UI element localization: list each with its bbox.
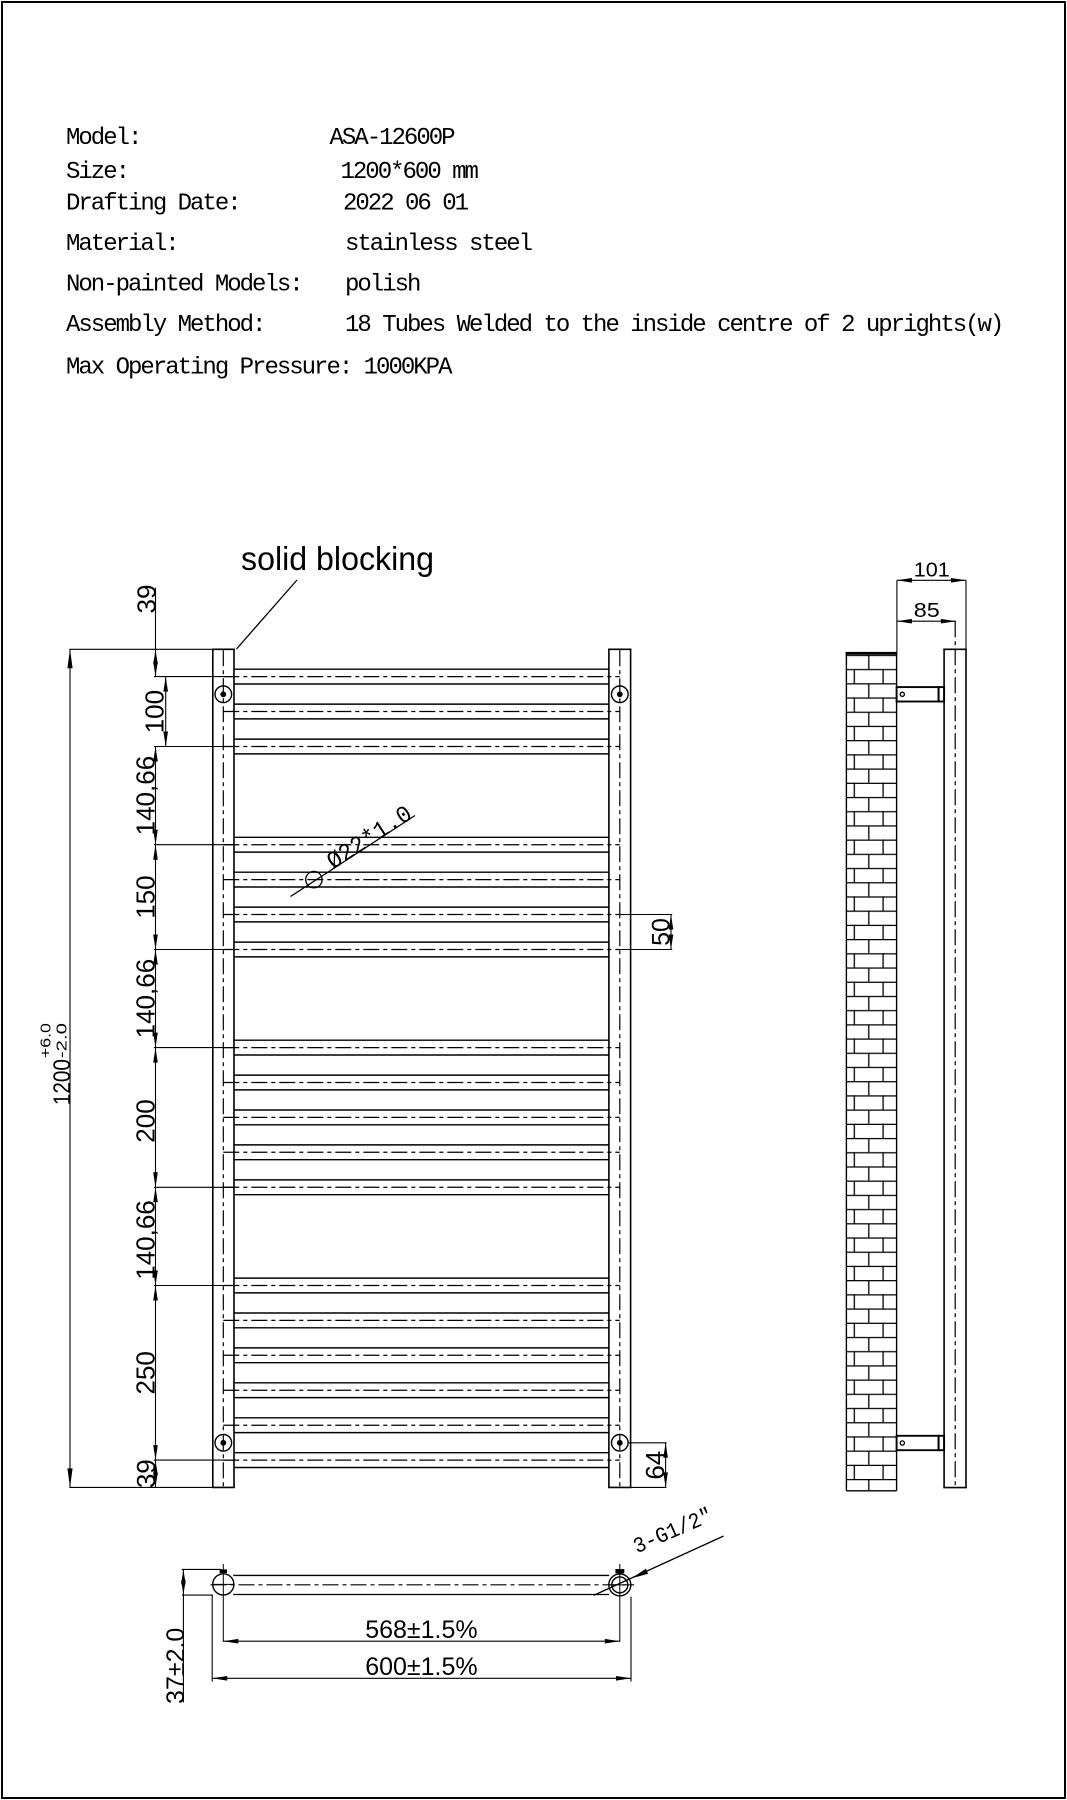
svg-text:2022 06 01: 2022 06 01: [343, 191, 469, 218]
svg-text:polish: polish: [345, 271, 420, 298]
svg-text:39: 39: [131, 1459, 161, 1488]
svg-text:3-G1/2": 3-G1/2": [630, 1503, 717, 1559]
svg-text:-2.0: -2.0: [54, 1023, 71, 1058]
svg-text:85: 85: [914, 600, 940, 622]
svg-text:18 Tubes Welded to the inside: 18 Tubes Welded to the inside centre of …: [345, 312, 1002, 339]
svg-text:ASA-12600P: ASA-12600P: [330, 125, 456, 152]
svg-text:600±1.5%: 600±1.5%: [365, 1653, 477, 1681]
svg-text:Assembly Method:: Assembly Method:: [66, 312, 264, 339]
svg-text:140,66: 140,66: [131, 756, 161, 836]
svg-text:1200: 1200: [49, 1059, 76, 1105]
svg-text:Non-painted Models:: Non-painted Models:: [66, 271, 302, 298]
svg-text:stainless steel: stainless steel: [345, 231, 533, 258]
svg-text:568±1.5%: 568±1.5%: [365, 1616, 477, 1644]
svg-text:250: 250: [131, 1351, 161, 1394]
svg-text:+6.0: +6.0: [38, 1023, 55, 1058]
svg-text:200: 200: [131, 1099, 161, 1142]
svg-text:1200*600 mm: 1200*600 mm: [341, 159, 479, 186]
svg-text:39: 39: [132, 585, 162, 614]
svg-text:150: 150: [131, 875, 161, 918]
svg-text:solid blocking: solid blocking: [241, 540, 434, 577]
svg-text:Ø22*1.0: Ø22*1.0: [323, 801, 418, 876]
svg-text:37±2.0: 37±2.0: [162, 1628, 190, 1704]
svg-text:Model:: Model:: [66, 125, 140, 152]
svg-text:140,66: 140,66: [131, 959, 161, 1039]
svg-text:Drafting Date:: Drafting Date:: [66, 191, 240, 218]
svg-text:50: 50: [648, 918, 676, 946]
svg-text:Material:: Material:: [66, 231, 178, 258]
svg-text:Max Operating Pressure: 1000KP: Max Operating Pressure: 1000KPA: [66, 355, 453, 382]
svg-text:64: 64: [640, 1451, 670, 1480]
svg-text:140,66: 140,66: [131, 1200, 161, 1280]
svg-text:Size:: Size:: [66, 159, 128, 186]
svg-text:101: 101: [914, 559, 950, 581]
svg-text:100: 100: [140, 690, 170, 733]
